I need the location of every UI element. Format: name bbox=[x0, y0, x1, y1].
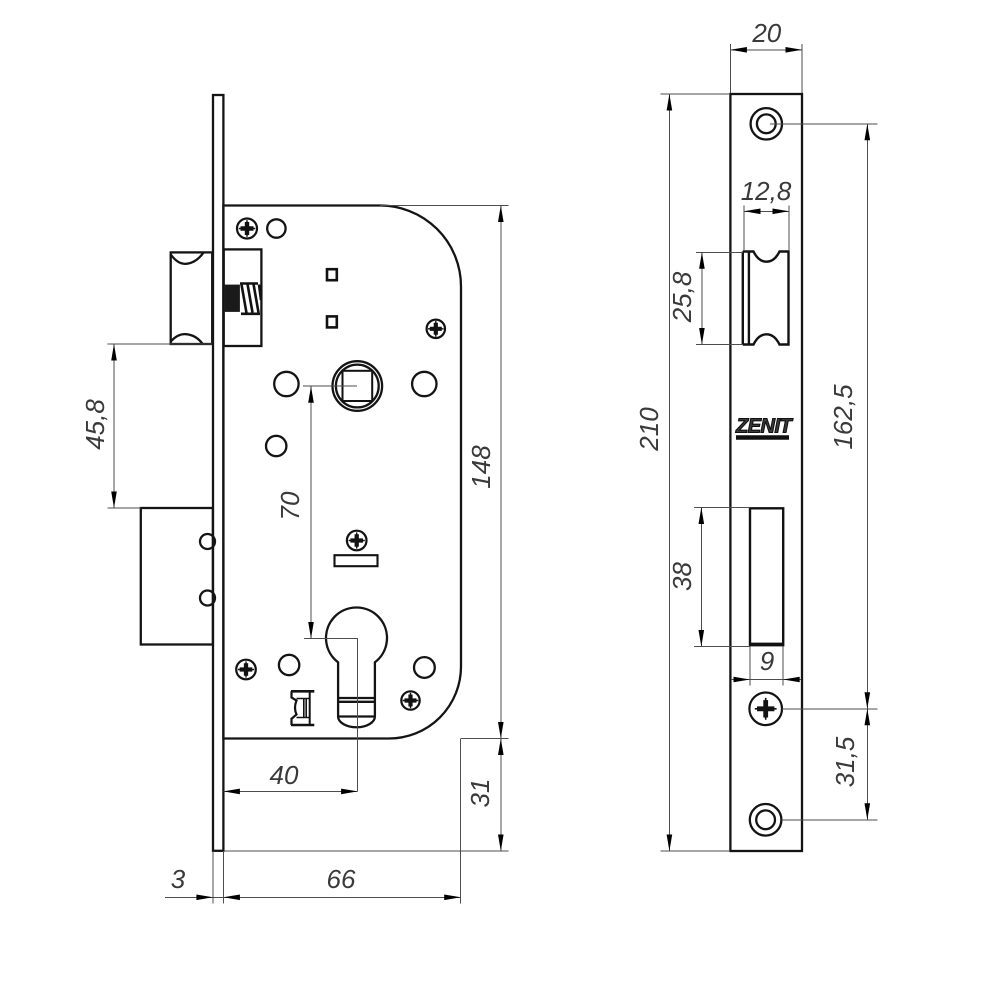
svg-text:70: 70 bbox=[275, 491, 305, 520]
svg-text:31,5: 31,5 bbox=[830, 736, 860, 787]
svg-text:66: 66 bbox=[327, 864, 356, 894]
svg-text:162,5: 162,5 bbox=[828, 384, 858, 450]
svg-text:9: 9 bbox=[760, 646, 774, 676]
svg-text:ZENIT: ZENIT bbox=[735, 416, 794, 438]
svg-text:25,8: 25,8 bbox=[667, 271, 697, 323]
svg-text:45,8: 45,8 bbox=[80, 399, 110, 450]
svg-text:40: 40 bbox=[270, 760, 299, 790]
svg-text:20: 20 bbox=[751, 18, 781, 48]
svg-text:148: 148 bbox=[466, 445, 496, 489]
svg-text:31: 31 bbox=[465, 779, 495, 808]
svg-text:12,8: 12,8 bbox=[741, 176, 792, 206]
svg-text:210: 210 bbox=[634, 407, 664, 452]
svg-text:3: 3 bbox=[171, 864, 186, 894]
svg-text:38: 38 bbox=[667, 562, 697, 591]
